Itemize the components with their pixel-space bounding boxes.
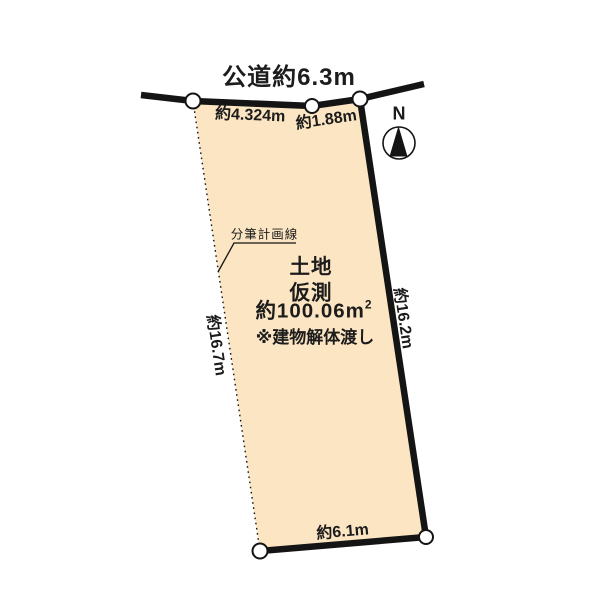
vertex-marker-se [419,530,433,544]
vertex-marker-n-mid [305,99,319,113]
parcel-area-value: 約100.06m [255,299,364,323]
vertex-marker-nw [186,94,201,109]
plot-canvas: N 公道約6.3m 約4.324m 約1.88m 約16.7m 約16.2m 約… [0,0,600,600]
parcel-area: 約100.06m2 [255,298,372,323]
parcel-title: 土地 [290,255,333,279]
vertex-marker-sw [253,544,268,559]
subdivision-label: 分筆計画線 [231,227,299,242]
parcel-area-sup: 2 [365,298,373,312]
land-plot-diagram: N 公道約6.3m 約4.324m 約1.88m 約16.7m 約16.2m 約… [0,0,600,600]
north-label: N [393,104,406,124]
vertex-marker-ne [353,92,368,107]
parcel-note: ※建物解体渡し [256,327,375,347]
road-width-label: 公道約6.3m [222,63,356,91]
